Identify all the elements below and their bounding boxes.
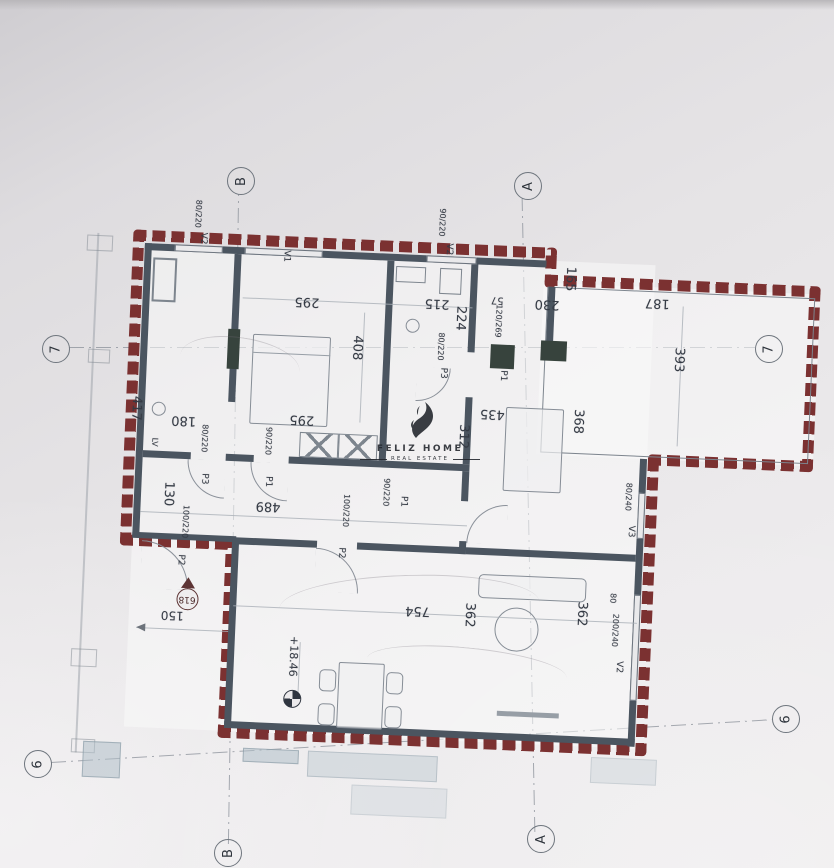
dim-362-left: 362	[461, 602, 477, 627]
dim-215: 215	[424, 295, 449, 311]
adjacent-wall-line	[75, 233, 99, 753]
adjacent-box	[88, 349, 111, 364]
door-p1-living-size: 90/220	[381, 478, 391, 507]
balloon-pointer-icon	[181, 577, 195, 589]
floor-plan-photo: B A 7 7 6 6 A B	[0, 0, 834, 868]
win-v2a-size: 80/220	[193, 200, 203, 229]
dim-150-arrowhead-icon	[136, 623, 145, 631]
wardrobe	[299, 432, 339, 459]
dim-295-top: 295	[294, 294, 319, 310]
dim-180: 180	[171, 412, 196, 428]
dim-489: 489	[255, 498, 280, 514]
chair	[319, 669, 337, 692]
grid-bubble-label: 7	[49, 345, 64, 353]
adjacent-blue-shape	[82, 741, 122, 779]
door-p3-bath: P3	[438, 367, 448, 379]
win-v3-size: 80/240	[623, 483, 633, 512]
grid-bubble-7-left: 7	[42, 335, 70, 363]
grid-bubble-7-right: 7	[755, 335, 783, 363]
bed	[503, 407, 565, 493]
grid-bubble-label: B	[233, 177, 248, 186]
dim-435: 435	[480, 406, 505, 422]
watermark-subtitle: REAL ESTATE	[360, 456, 480, 462]
door-p1-terrace: P1	[498, 370, 508, 382]
lbl-lv: LV	[150, 437, 159, 446]
dim-295-mid: 295	[289, 411, 314, 427]
watermark-title: FELIZ HOME	[360, 444, 480, 454]
wall-hall-top	[226, 454, 254, 462]
grid-bubble-b-top: B	[227, 167, 255, 195]
grid-bubble-6-left: 6	[24, 750, 52, 778]
grid-bubble-label: A	[534, 835, 549, 844]
dim-754: 754	[405, 603, 430, 619]
bath-wc	[439, 268, 462, 295]
door-p2-living-size: 100/220	[341, 494, 351, 528]
duct-box	[151, 257, 177, 302]
dim-368: 368	[570, 409, 586, 434]
dim-130: 130	[160, 481, 176, 506]
dim-362-right: 362	[574, 601, 590, 626]
balloon-marker-label: 618	[179, 594, 197, 605]
dim-417: 417	[128, 396, 144, 421]
adjacent-blue-shape	[350, 785, 447, 819]
adjacent-blue-shape	[242, 748, 299, 764]
adjacent-box	[70, 648, 97, 667]
door-p1-living: P1	[398, 496, 408, 508]
dim-80: 80	[608, 593, 617, 604]
grid-bubble-b-bottom: B	[214, 839, 242, 867]
door-p3-hall: P3	[199, 473, 209, 485]
adjacent-gray-steps	[590, 757, 657, 786]
dim-165: 165	[562, 266, 578, 291]
column	[540, 340, 567, 361]
watermark: FELIZ HOME REAL ESTATE	[360, 402, 480, 462]
door-p2-living: P2	[336, 547, 346, 559]
win-v2a: V2	[198, 232, 209, 244]
win-v2c: V2	[614, 661, 625, 673]
grid-bubble-a-bottom: A	[527, 825, 555, 853]
dim-224: 224	[452, 306, 468, 331]
dim-150: 150	[160, 608, 183, 623]
adjacent-box	[87, 234, 114, 251]
door-p2-entry-size: 100/220	[180, 505, 190, 539]
dim-393: 393	[671, 347, 687, 372]
chair	[317, 703, 335, 726]
win-v2c-size: 200/240	[610, 614, 620, 648]
adjacent-blue-shape	[307, 751, 438, 783]
dining-table	[336, 662, 385, 730]
door-p1-hall-size: 90/220	[263, 427, 273, 456]
grid-bubble-label: B	[220, 849, 235, 858]
grid-bubble-6-right: 6	[772, 705, 800, 733]
door-p1-terrace-size: 120/269	[493, 304, 503, 338]
win-v3: V3	[626, 525, 637, 537]
door-p2-entry: P2	[176, 554, 186, 566]
dim-187: 187	[645, 295, 670, 311]
level-value: +18.46	[286, 636, 301, 677]
win-v2b-size: 90/220	[437, 208, 447, 237]
dim-230: 230	[534, 296, 559, 312]
flame-logo-icon	[405, 402, 435, 438]
dim-408: 408	[349, 335, 365, 360]
door-p3-hall-size: 80/220	[200, 424, 210, 453]
grid-bubble-label: 6	[31, 760, 46, 768]
door-p1-hall: P1	[263, 476, 273, 488]
win-v1: V1	[281, 250, 292, 262]
grid-bubble-a-top: A	[514, 172, 542, 200]
column	[490, 344, 515, 369]
door-p3-bath-size: 80/220	[436, 332, 446, 361]
grid-bubble-label: A	[521, 182, 536, 191]
grid-bubble-label: 7	[762, 345, 777, 353]
win-v2b: V2	[444, 243, 455, 255]
chair	[384, 706, 402, 729]
grid-bubble-label: 6	[779, 715, 794, 723]
bath-sink	[396, 266, 427, 283]
wall-hall-right	[461, 471, 469, 501]
